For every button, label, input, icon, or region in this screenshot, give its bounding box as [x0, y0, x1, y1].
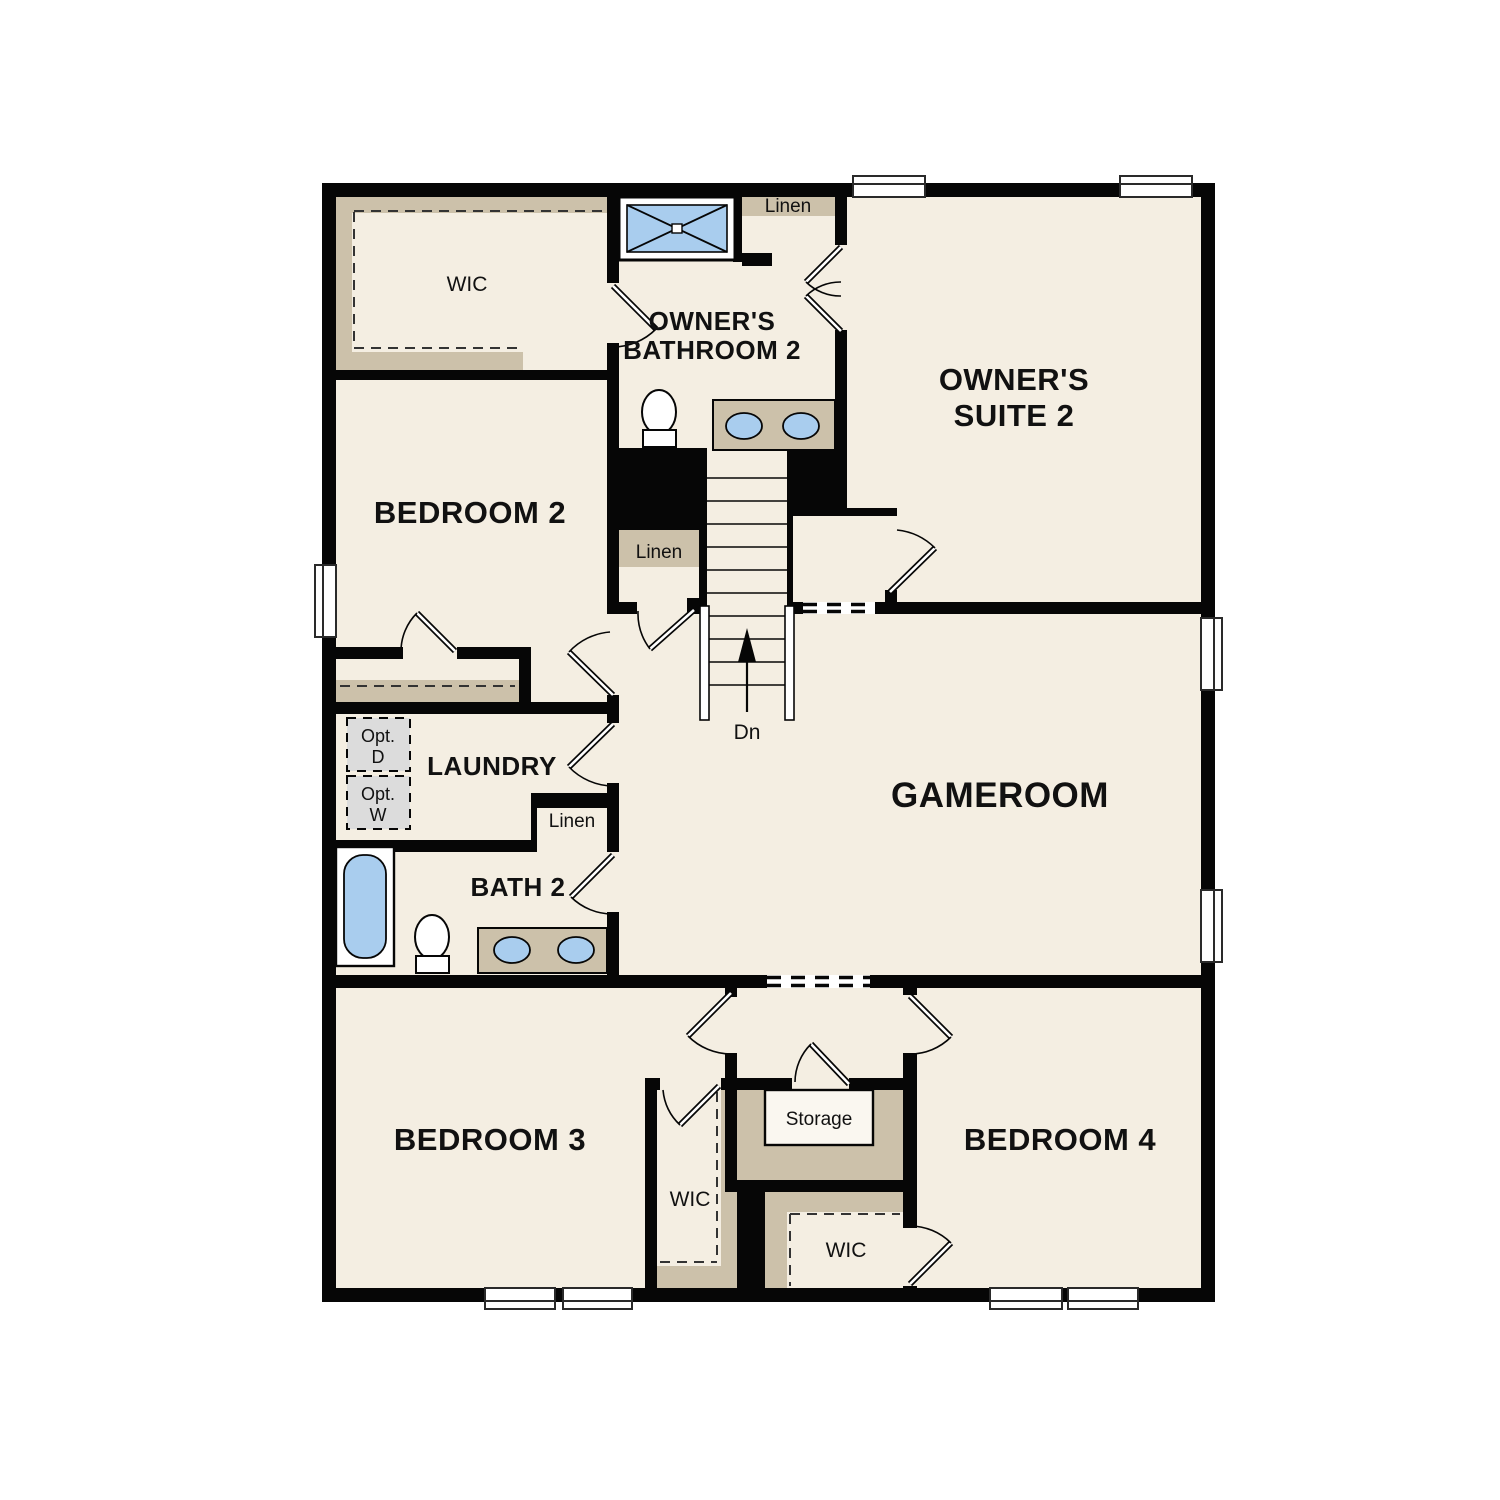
bedroom2-label: BEDROOM 2	[374, 495, 566, 530]
storage-label: Storage	[786, 1109, 853, 1130]
wic-top-label: WIC	[447, 273, 488, 296]
opt-dryer-line2: D	[372, 747, 385, 767]
room-vestibule	[737, 988, 903, 1078]
opt-washer-line1: Opt.	[361, 784, 395, 804]
vanity-owners-bath	[713, 400, 835, 450]
bedroom4-label: BEDROOM 4	[964, 1122, 1157, 1157]
owners-bathroom2-label-line2: BATHROOM 2	[623, 335, 801, 365]
owners-suite2-label-line1: OWNER'S	[939, 362, 1089, 397]
wic-bedroom4-label: WIC	[826, 1239, 867, 1262]
gameroom-label: GAMEROOM	[891, 776, 1109, 815]
vanity-bath2	[478, 928, 607, 973]
bathtub-fixture	[336, 847, 394, 966]
laundry-label: LAUNDRY	[427, 751, 557, 781]
toilet-bath2	[415, 915, 449, 973]
wic-bedroom3-label: WIC	[670, 1188, 711, 1211]
owners-bathroom2-label-line1: OWNER'S	[649, 306, 776, 336]
bath2-label: BATH 2	[471, 872, 566, 902]
linen-mid-label: Linen	[636, 542, 683, 563]
shower-fixture	[619, 197, 735, 260]
toilet-owners-bath	[642, 390, 676, 447]
floor-plan-page: WIC OWNER'S BATHROOM 2 Linen OWNER'S SUI…	[0, 0, 1500, 1500]
stairs-dn-label: Dn	[734, 721, 761, 744]
linen-top-label: Linen	[765, 196, 812, 217]
opt-dryer-line1: Opt.	[361, 726, 395, 746]
owners-suite2-label-line2: SUITE 2	[954, 398, 1075, 433]
opt-washer-line2: W	[370, 805, 387, 825]
bedroom3-label: BEDROOM 3	[394, 1122, 586, 1157]
linen-bath2-label: Linen	[549, 811, 596, 832]
floor-plan-svg: WIC OWNER'S BATHROOM 2 Linen OWNER'S SUI…	[0, 0, 1500, 1500]
